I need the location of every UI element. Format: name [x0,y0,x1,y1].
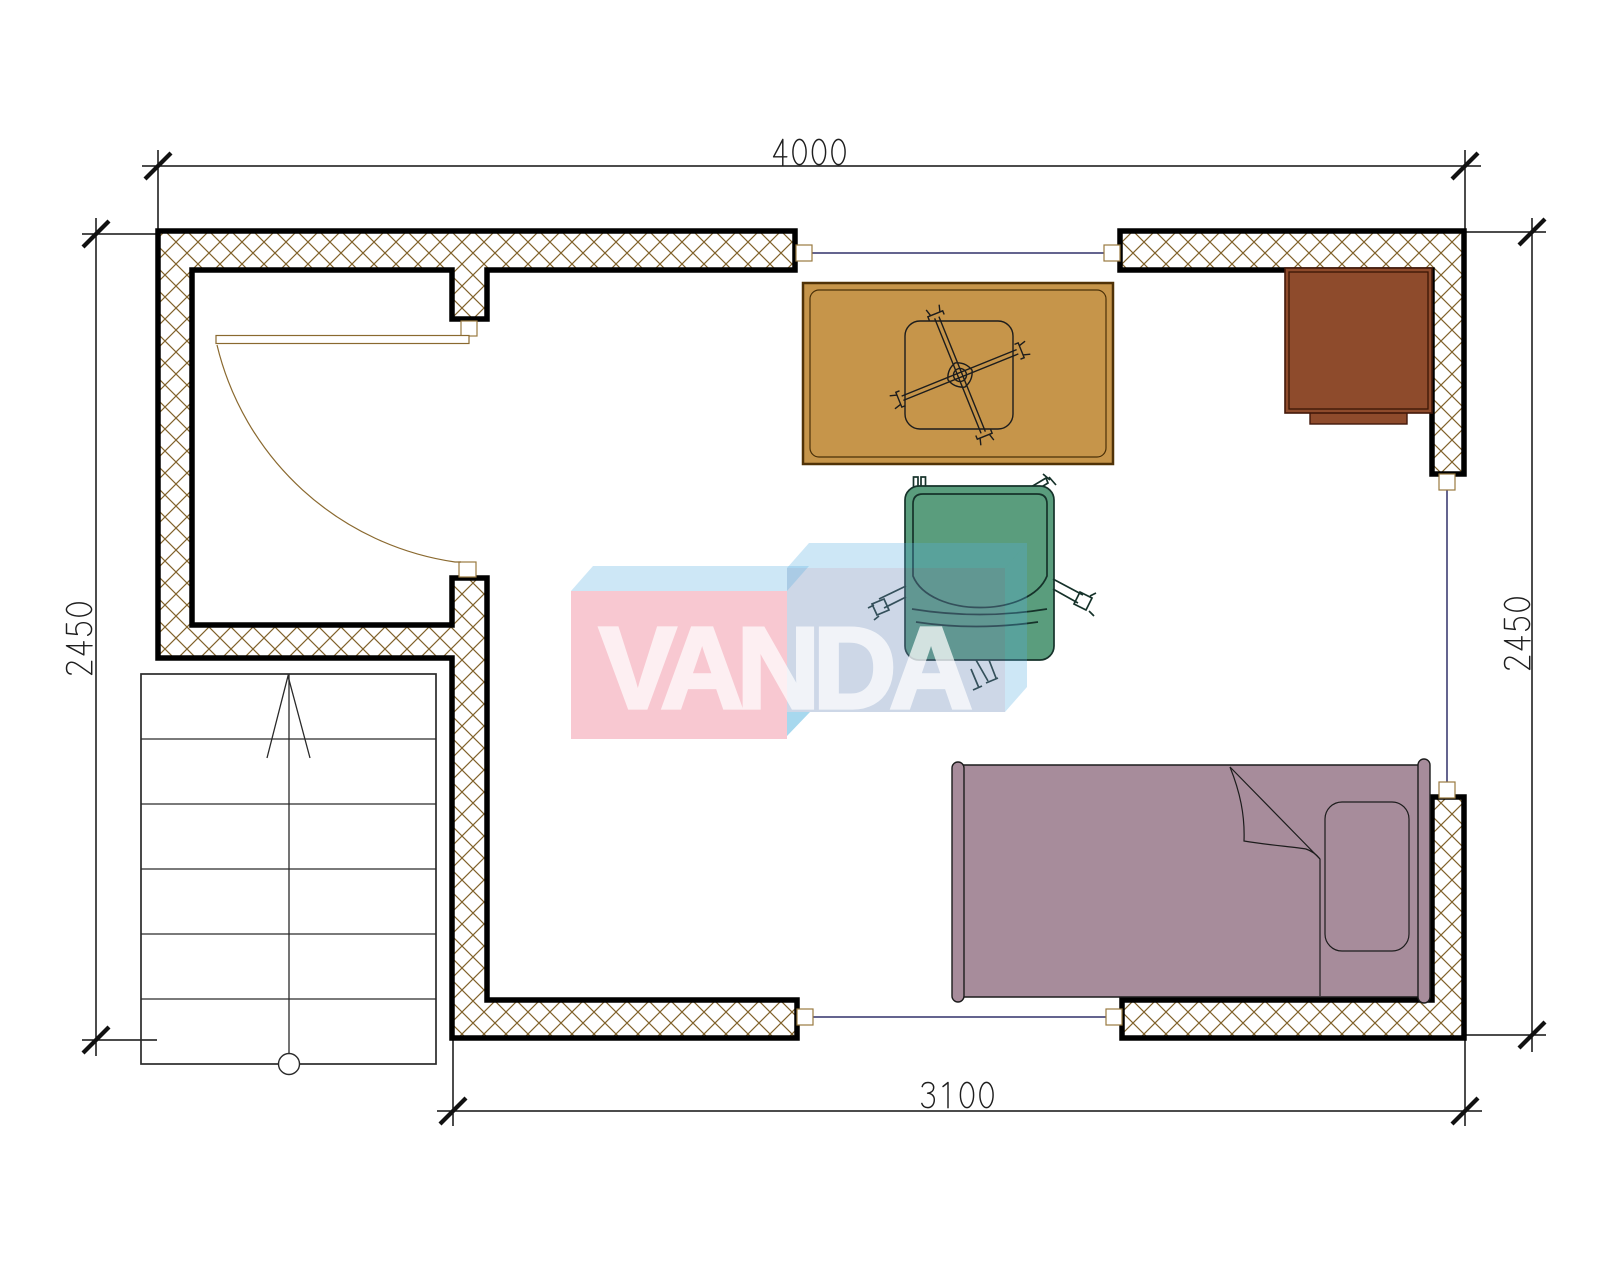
svg-text:VANDA: VANDA [599,603,970,733]
